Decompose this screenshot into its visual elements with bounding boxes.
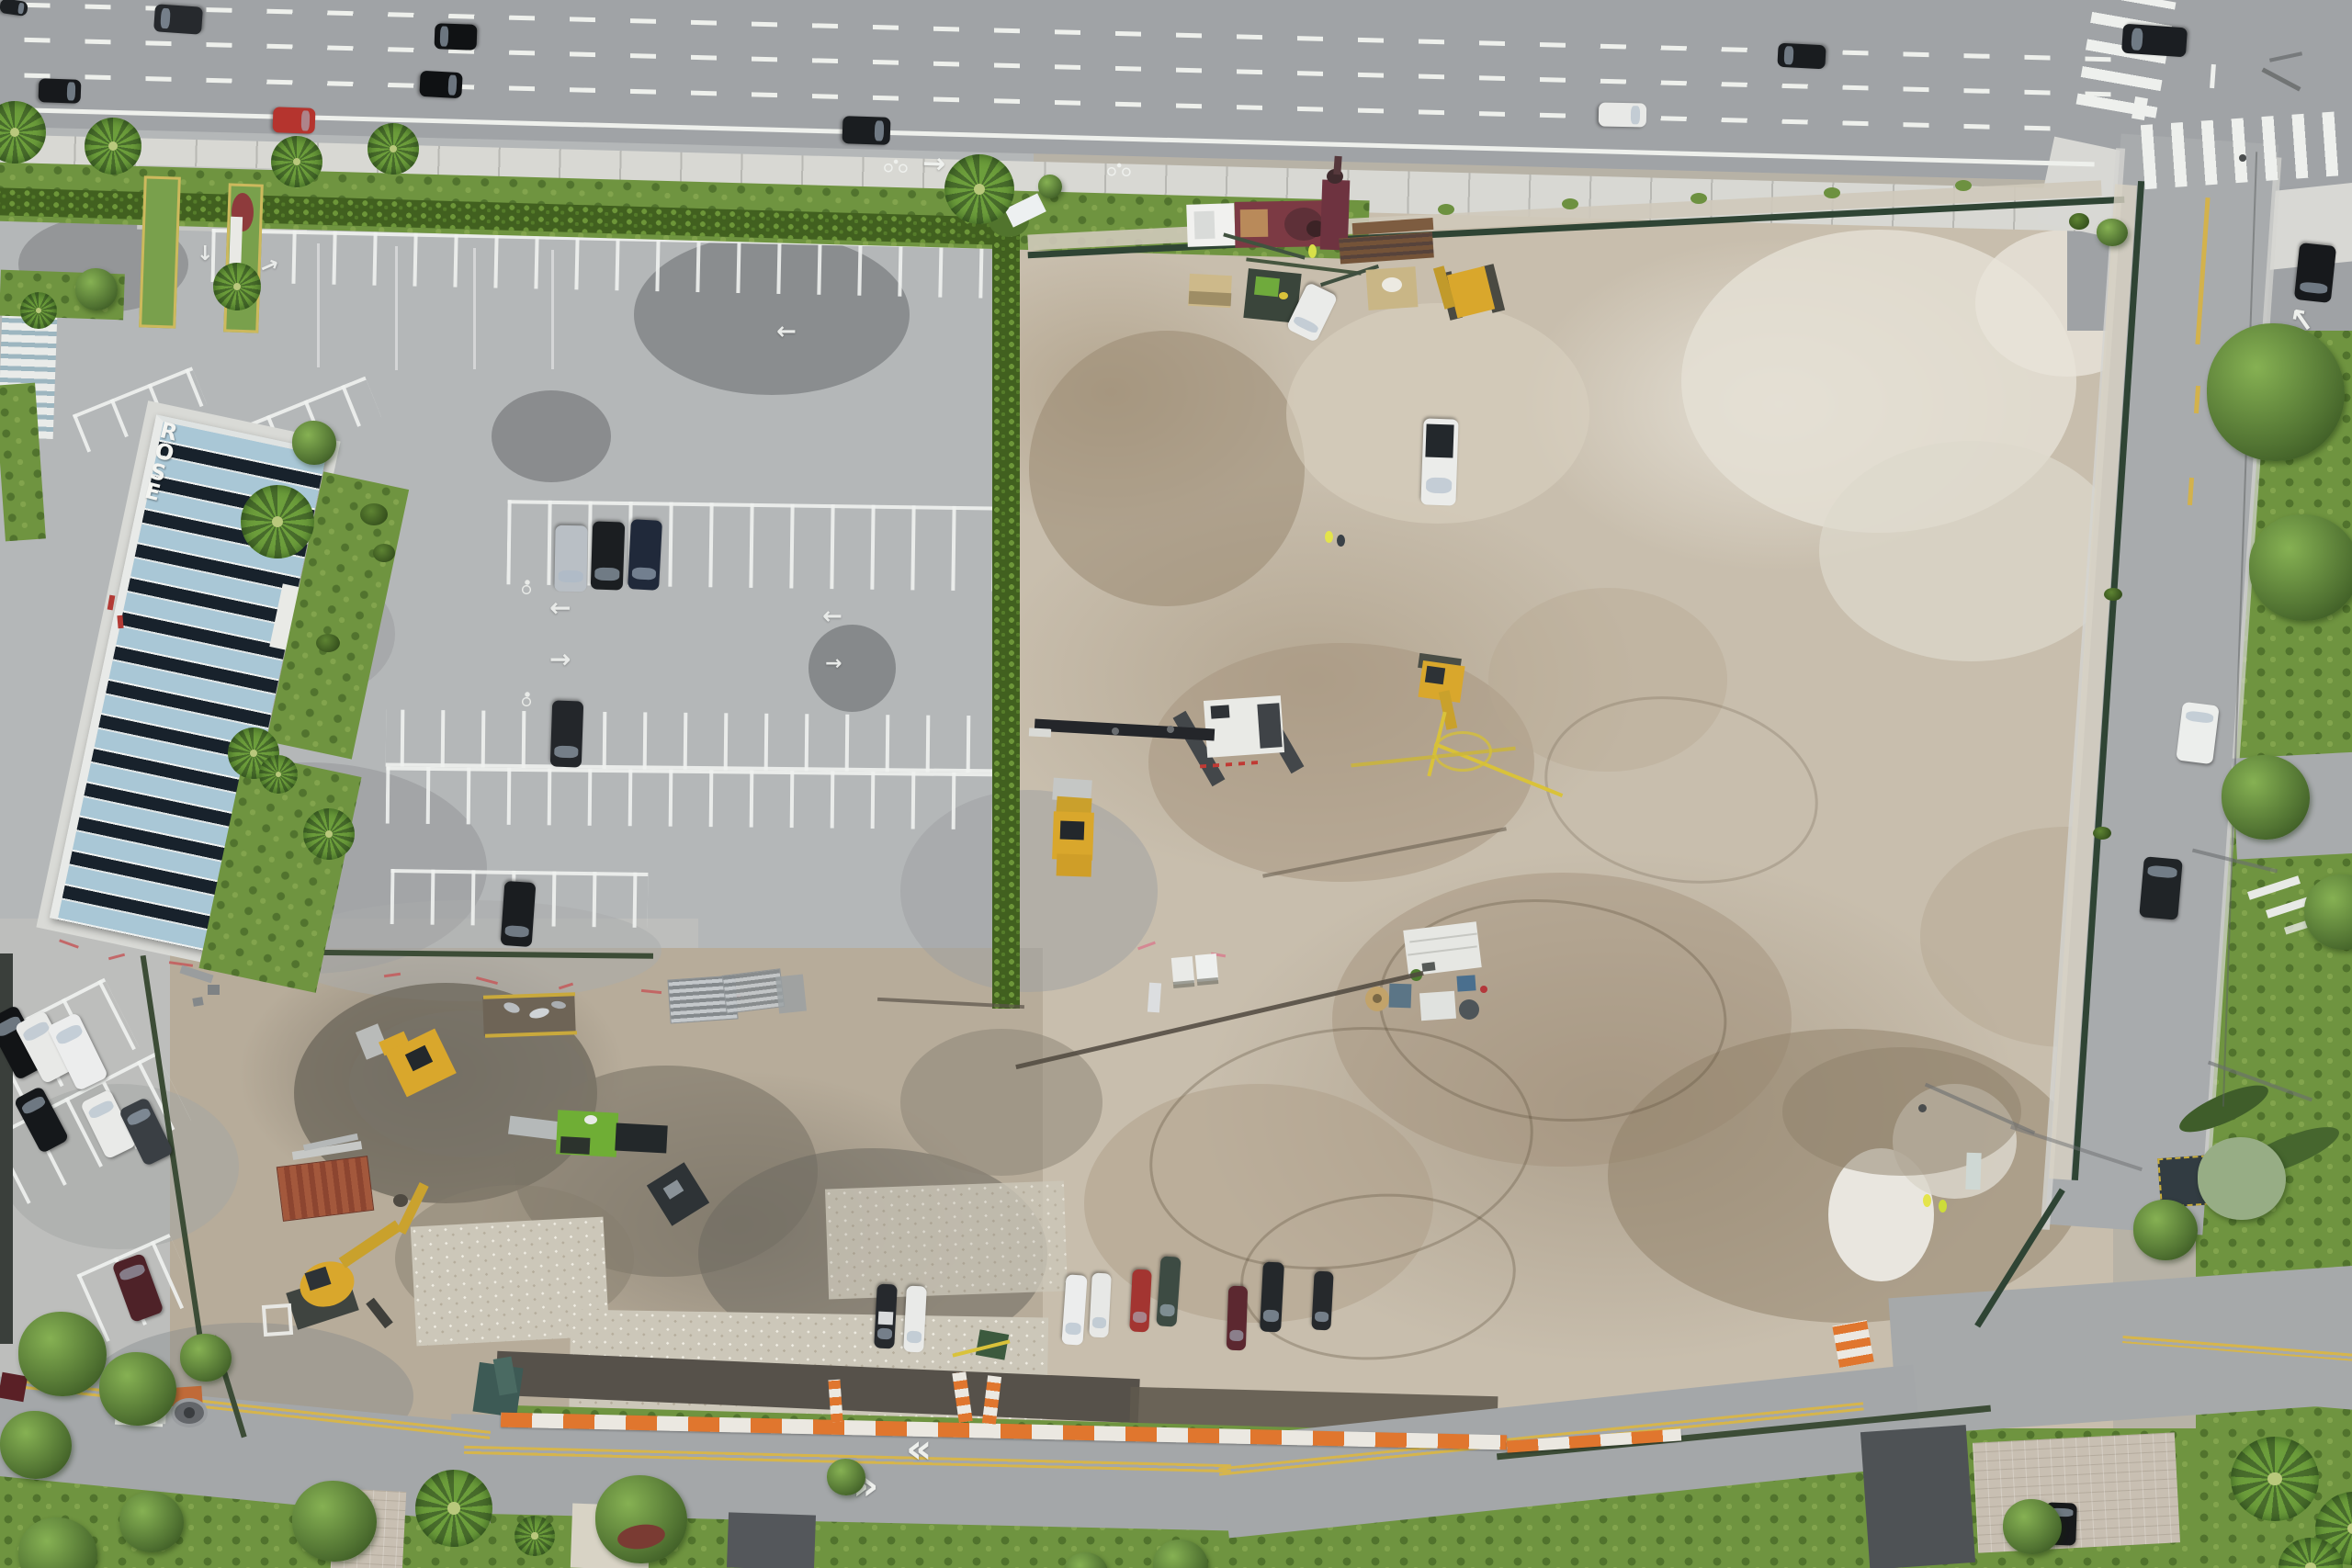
pale-tree xyxy=(2198,1137,2286,1220)
palm-tree xyxy=(241,485,314,558)
small-tree xyxy=(1038,175,1062,198)
white-frame xyxy=(262,1303,293,1337)
grass-tuft xyxy=(2093,827,2111,840)
red-marker xyxy=(1480,986,1487,993)
bush xyxy=(2069,213,2089,230)
tank-cylinder xyxy=(1459,999,1479,1020)
drill-mast-tip xyxy=(1333,156,1341,175)
white-bag xyxy=(1382,277,1402,292)
tree xyxy=(119,1492,184,1552)
parked-car-maroon xyxy=(1227,1286,1248,1351)
aerial-photo-construction-site: ↑→«»←→←→←↓←→↓→R O S E xyxy=(0,0,2352,1568)
tree xyxy=(75,268,118,310)
highway-car-red xyxy=(273,107,316,134)
entrance-median-island xyxy=(139,175,181,328)
worker-hivis xyxy=(1308,244,1317,258)
grass-tuft xyxy=(1562,198,1578,209)
loader-rear xyxy=(1057,853,1092,876)
highway-suv xyxy=(2121,24,2188,58)
crane-cab xyxy=(1211,705,1230,718)
tree xyxy=(2003,1499,2062,1554)
tree xyxy=(292,1481,377,1562)
lot-seam-line xyxy=(395,246,398,370)
wet-stain xyxy=(808,625,896,712)
parked-car-red xyxy=(1129,1269,1152,1332)
worker-hivis xyxy=(1939,1200,1947,1213)
highway-car xyxy=(39,78,82,104)
worker-hivis xyxy=(1325,531,1333,543)
parked-suv-black xyxy=(1260,1261,1284,1332)
boom-joint xyxy=(1167,726,1174,733)
coiled-yellow-hose xyxy=(1433,731,1492,772)
east-road-car-white xyxy=(2176,702,2220,764)
car-roof-patch xyxy=(878,1312,894,1325)
red-post xyxy=(117,615,123,628)
gravel-patch xyxy=(825,1180,1068,1299)
green-machine-panel xyxy=(1254,276,1280,298)
grass-tuft xyxy=(1955,180,1972,191)
parked-car xyxy=(903,1285,927,1352)
signal-equipment xyxy=(192,997,203,1007)
drill-rig-truck-roof xyxy=(1193,211,1215,240)
tree xyxy=(99,1352,176,1426)
palm-tree xyxy=(20,292,57,329)
lot-seam-line xyxy=(551,250,554,369)
parked-car xyxy=(1311,1270,1333,1330)
scaffold-frame xyxy=(775,975,807,1014)
drill-rig-crate xyxy=(1240,209,1269,238)
lot-seam-line xyxy=(317,243,320,367)
cable-spool-hub xyxy=(1373,994,1382,1003)
tree xyxy=(292,421,336,465)
lot-arrow: → xyxy=(825,654,842,674)
pipe-stack xyxy=(722,968,786,1013)
lot-arrow: ← xyxy=(549,595,571,621)
lot-car xyxy=(501,881,537,947)
telehandler-cap xyxy=(584,1115,597,1124)
tree xyxy=(827,1459,865,1495)
palm-tree xyxy=(213,263,261,310)
blue-equipment-box xyxy=(1389,984,1412,1009)
tree xyxy=(18,1312,107,1396)
bike-lane-symbol xyxy=(1107,162,1132,177)
yellow-detail xyxy=(1279,292,1288,299)
palm-tree xyxy=(944,154,1014,224)
crane-engine xyxy=(1257,703,1282,749)
lot-arrow: ← xyxy=(776,320,797,344)
tree xyxy=(0,1411,72,1479)
parked-car xyxy=(1089,1272,1112,1337)
red-vehicle-partial xyxy=(0,1372,28,1402)
large-tree xyxy=(2207,323,2345,461)
east-road-car xyxy=(2294,243,2336,303)
highway-car-white xyxy=(1599,103,1646,128)
highway-car xyxy=(419,71,462,98)
bus-stop-sign xyxy=(1965,1153,1981,1190)
palm-tree xyxy=(303,808,355,860)
portable-toilet xyxy=(1148,983,1161,1013)
asphalt-driveway xyxy=(1860,1425,1975,1568)
blue-panel xyxy=(1456,975,1476,991)
tree xyxy=(180,1334,232,1382)
sand-patch xyxy=(1819,441,2122,661)
excavator-cab xyxy=(1425,666,1445,685)
construction-sign-back xyxy=(1832,1320,1873,1368)
lot-car-black xyxy=(591,521,626,590)
lot-car xyxy=(550,700,583,767)
palm-tree xyxy=(367,123,419,175)
lot-arrow: → xyxy=(549,647,571,672)
large-tree xyxy=(2249,514,2352,621)
worker xyxy=(1337,535,1345,547)
palm-tree xyxy=(415,1470,492,1547)
wet-stain xyxy=(492,390,611,482)
highway-car xyxy=(435,23,478,51)
grass-tuft xyxy=(1438,204,1454,215)
bike-lane-symbol xyxy=(884,158,909,174)
highway-car xyxy=(1777,43,1826,70)
shipping-container xyxy=(277,1156,375,1222)
dirt-shade xyxy=(1029,331,1305,606)
telehandler-dark xyxy=(560,1136,591,1155)
round-tree xyxy=(2133,1200,2198,1260)
asphalt-driveway xyxy=(727,1512,816,1568)
east-road-car-black xyxy=(2139,856,2183,919)
grass-tuft xyxy=(1690,193,1707,204)
signal-equipment xyxy=(208,985,220,995)
site-boundary-hedge xyxy=(992,219,1020,1009)
palm-tree xyxy=(271,136,322,187)
palm-tree xyxy=(2231,1437,2319,1521)
parking-stall-row xyxy=(386,709,1012,773)
tree xyxy=(2097,219,2128,246)
tree xyxy=(2222,755,2310,840)
handicap-symbol xyxy=(520,691,533,707)
lane-arrow: → xyxy=(922,151,945,179)
tree xyxy=(595,1475,687,1563)
trailer-door xyxy=(1422,962,1436,972)
lot-arrow: ← xyxy=(822,604,842,628)
pickup-bed xyxy=(1425,423,1453,457)
crane-boom-tip xyxy=(1029,728,1051,737)
bush xyxy=(373,544,395,562)
lot-car-navy xyxy=(628,519,662,591)
generator-box-side xyxy=(1189,291,1232,306)
loader-cab xyxy=(1060,821,1085,840)
bush xyxy=(316,634,340,652)
white-machine xyxy=(1419,991,1456,1021)
telehandler-forks xyxy=(615,1123,667,1154)
grass-tuft xyxy=(1824,187,1840,198)
utility-pole xyxy=(2239,154,2246,162)
palm-tree xyxy=(259,755,298,794)
lot-car-silver xyxy=(554,525,587,592)
grass-tuft xyxy=(2104,588,2122,601)
palm-tree xyxy=(85,118,141,175)
worker-hivis xyxy=(1923,1194,1931,1207)
highway-car xyxy=(842,116,890,145)
palm-tree xyxy=(514,1516,555,1556)
cable-drum-hub xyxy=(184,1407,195,1418)
highway-car xyxy=(153,4,203,35)
utility-pole xyxy=(1918,1104,1927,1112)
lot-seam-line xyxy=(473,248,476,369)
parking-stall-row xyxy=(386,766,1012,829)
boom-joint xyxy=(1112,728,1119,735)
excavator2-bucket xyxy=(393,1194,408,1207)
bush xyxy=(360,503,388,525)
